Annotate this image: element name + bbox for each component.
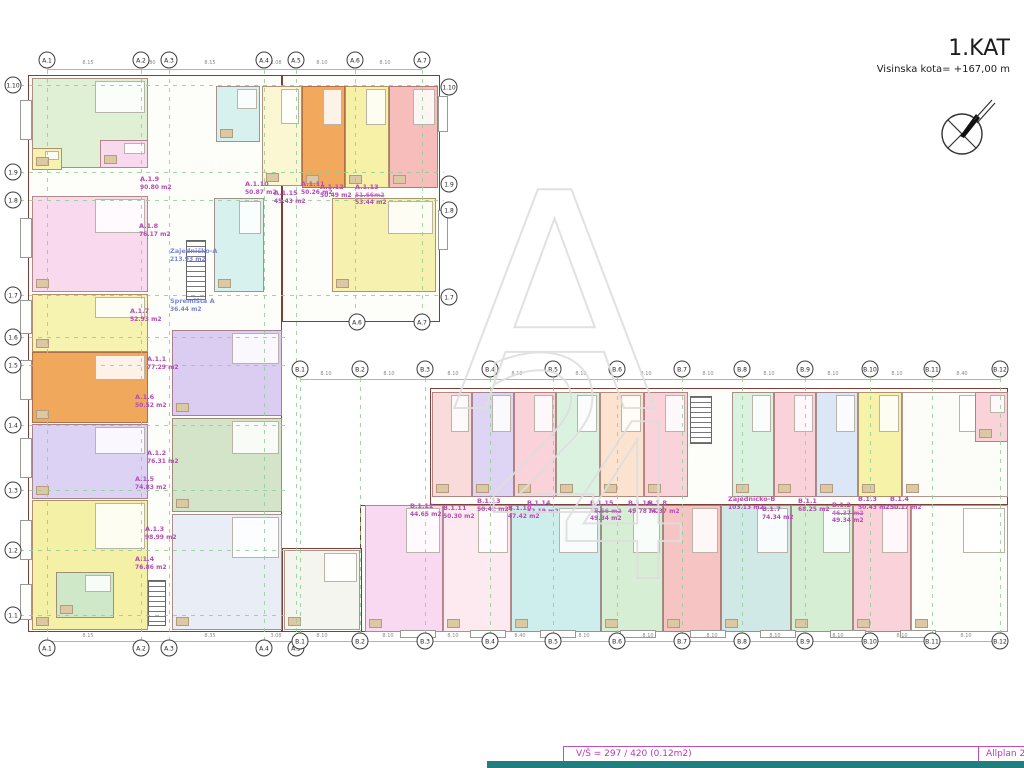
statusbar-topline	[563, 746, 1024, 747]
dimension-value: 8.10	[960, 633, 971, 639]
apartment-area: 74.83 m2	[135, 484, 167, 491]
apartment-number: Zajedničko-A	[170, 248, 217, 256]
stair-core-a2	[148, 580, 166, 626]
dimension-value: 8.10	[320, 371, 331, 377]
axis-bubble: B.8	[734, 633, 751, 650]
apartment-area: 50.49 m2	[320, 192, 352, 199]
apartment-area: 76.86 m2	[135, 564, 167, 571]
axis-bubble: B.6	[609, 361, 626, 378]
apartment-number: A.1.13	[355, 184, 387, 192]
axis-bubble: A.2	[133, 52, 150, 69]
axis-bubble: 1.2	[5, 542, 22, 559]
axis-bubble: B.9	[797, 361, 814, 378]
dimension-value: 8.10	[575, 371, 586, 377]
axis-bubble: B.7	[674, 361, 691, 378]
apartment-unit-block	[443, 505, 511, 632]
apartment-number: A.1.10	[245, 181, 277, 189]
dimension-value: 8.10	[447, 633, 458, 639]
apartment-unit-block	[172, 330, 282, 416]
grid-line-horizontal	[20, 85, 444, 86]
apartment-number: A.1.7	[130, 308, 162, 316]
grid-line-vertical	[47, 70, 48, 652]
axis-bubble: A.4	[256, 52, 273, 69]
statusbar-divider	[563, 746, 564, 762]
dimension-value: 8.10	[316, 60, 327, 66]
apartment-unit-block	[216, 86, 260, 142]
dimension-value: 8.15	[82, 60, 93, 66]
dimension-value: 8.10	[896, 633, 907, 639]
apartment-label: A.1.12 50.49 m2	[320, 184, 352, 199]
dimension-value: 8.10	[702, 371, 713, 377]
apartment-label: B.1.3 50.43 m2	[858, 496, 890, 511]
apartment-area-struck: 51.66m2	[355, 192, 387, 199]
apartment-unit-block	[732, 392, 774, 497]
axis-bubble: A.3	[161, 52, 178, 69]
axis-bubble: 1.7	[5, 287, 22, 304]
apartment-area: 98.99 m2	[145, 534, 177, 541]
apartment-number: B.1.1	[798, 498, 830, 506]
dimension-value: 8.10	[640, 371, 651, 377]
axis-bubble: B.1	[292, 361, 309, 378]
apartment-label: B.1.8 74.37 m2	[648, 500, 680, 515]
apartment-unit-block	[600, 392, 644, 497]
apartment-unit-block	[472, 392, 514, 497]
apartment-area: 49.34 m2	[832, 517, 864, 524]
apartment-unit-block	[663, 505, 721, 632]
apartment-unit-block	[332, 198, 436, 292]
axis-bubble: 1.4	[5, 417, 22, 434]
apartment-number: B.1.12	[410, 503, 442, 511]
balcony	[20, 218, 32, 258]
axis-bubble: 1.10	[441, 79, 458, 96]
apartment-unit-block	[721, 505, 791, 632]
axis-bubble: A.4	[256, 640, 273, 657]
apartment-number: A.1.5	[135, 476, 167, 484]
apartment-area: 49.34 m2	[590, 515, 622, 522]
elevation-note: Visinska kota= +167,00 m	[877, 64, 1010, 75]
dimension-value: 8.10	[642, 633, 653, 639]
axis-bubble: B.11	[924, 361, 941, 378]
apartment-area: 52.19 m2	[527, 508, 559, 515]
stair-core-b	[690, 396, 712, 444]
dimension-value: 8.10	[578, 633, 589, 639]
apartment-number: A.1.2	[147, 450, 179, 458]
apartment-area: 45.43 m2	[274, 198, 306, 205]
axis-bubble: B.2	[352, 633, 369, 650]
apartment-area: 50.87 m2	[245, 189, 277, 196]
axis-bubble: A.1	[39, 52, 56, 69]
apartment-area: 90.80 m2	[140, 184, 172, 191]
apartment-label: B.1.4 50.17 m2	[890, 496, 922, 511]
axis-bubble: A.1	[39, 640, 56, 657]
dim-chain-top	[47, 69, 422, 70]
axis-bubble: B.7	[674, 633, 691, 650]
apartment-unit-block	[514, 392, 556, 497]
balcony	[438, 96, 448, 132]
apartment-label: A.1.7 52.93 m2	[130, 308, 162, 323]
apartment-unit-block	[172, 418, 282, 512]
apartment-label: A.1.1 77.29 m2	[147, 356, 179, 371]
axis-bubble: A.6	[349, 314, 366, 331]
apartment-unit-block	[432, 392, 472, 497]
apartment-area: 44.65 m2	[410, 511, 442, 518]
apartment-number: B.1.8	[648, 500, 680, 508]
axis-bubble: A.5	[288, 52, 305, 69]
floor-title: 1.KAT	[948, 36, 1010, 61]
statusbar-teal-bar	[487, 761, 1024, 768]
apartment-label: A.1.3 98.99 m2	[145, 526, 177, 541]
apartment-area: 50.42 m2	[477, 506, 509, 513]
apartment-number: B.1.13	[477, 498, 509, 506]
axis-bubble: B.10	[862, 633, 879, 650]
axis-bubble: B.3	[417, 361, 434, 378]
apartment-unit-block	[511, 505, 601, 632]
balcony	[20, 360, 32, 400]
apartment-number: A.1.9	[140, 176, 172, 184]
apartment-number: A.1.1	[147, 356, 179, 364]
axis-bubble: B.11	[924, 633, 941, 650]
dimension-value: 8.10	[769, 633, 780, 639]
grid-line-vertical	[932, 378, 933, 636]
apartment-number: Zajedničko-B	[728, 496, 775, 504]
grid-line-horizontal	[20, 172, 444, 173]
apartment-label: B.1.7 74.34 m2	[762, 506, 794, 521]
apartment-unit-block	[32, 424, 148, 499]
axis-bubble: 1.6	[5, 329, 22, 346]
apartment-area: 36.44 m2	[170, 306, 215, 313]
apartment-area: 76.17 m2	[139, 231, 171, 238]
axis-bubble: A.7	[414, 314, 431, 331]
grid-line-vertical	[682, 378, 683, 636]
apartment-area: 77.29 m2	[147, 364, 179, 371]
apartment-unit-block	[911, 505, 1008, 632]
apartment-unit-block	[32, 196, 148, 292]
apartment-number: B.1.3	[858, 496, 890, 504]
apartment-area-struck: 45.56 m2	[590, 508, 622, 515]
axis-bubble: B.6	[609, 633, 626, 650]
axis-bubble: A.2	[133, 640, 150, 657]
apartment-area: 50.17 m2	[890, 504, 922, 511]
axis-bubble: B.4	[482, 361, 499, 378]
apartment-number: A.1.6	[135, 394, 167, 402]
dimension-value: 8.10	[511, 371, 522, 377]
balcony	[20, 300, 32, 334]
apartment-area: 52.93 m2	[130, 316, 162, 323]
axis-bubble: A.6	[347, 52, 364, 69]
apartment-area: 50.43 m2	[858, 504, 890, 511]
dimension-value: 8.10	[827, 371, 838, 377]
dimension-value: 8.15	[204, 60, 215, 66]
apartment-unit-block	[56, 572, 114, 618]
apartment-area: 53.44 m2	[355, 199, 387, 206]
dimension-value: 8.10	[316, 633, 327, 639]
axis-bubble: B.9	[797, 633, 814, 650]
axis-bubble: 1.9	[5, 164, 22, 181]
grid-line-horizontal	[20, 615, 288, 616]
axis-bubble: 1.10	[5, 77, 22, 94]
apartment-area: 74.34 m2	[762, 514, 794, 521]
apartment-number: A.1.12	[320, 184, 352, 192]
dimension-value: 8.10	[382, 633, 393, 639]
apartment-label: A.1.15 45.43 m2	[274, 190, 306, 205]
apartment-unit-block	[601, 505, 663, 632]
dimension-value: 8.10	[832, 633, 843, 639]
axis-bubble: 1.7	[441, 289, 458, 306]
apartment-label: B.1.13 50.42 m2	[477, 498, 509, 513]
axis-bubble: B.8	[734, 361, 751, 378]
axis-bubble: B.3	[417, 633, 434, 650]
apartment-number: A.1.3	[145, 526, 177, 534]
balcony	[20, 520, 32, 560]
balcony	[20, 100, 32, 140]
apartment-unit-block	[32, 294, 148, 352]
apartment-label: A.1.6 50.52 m2	[135, 394, 167, 409]
apartment-number: B.1.7	[762, 506, 794, 514]
balcony	[20, 438, 32, 478]
apartment-number: Spremišta A	[170, 298, 215, 306]
grid-line-vertical	[264, 70, 265, 652]
allplan-credit: Allplan 2	[986, 749, 1024, 759]
apartment-unit-block	[556, 392, 600, 497]
grid-line-vertical	[360, 378, 361, 636]
axis-bubble: A.3	[161, 640, 178, 657]
apartment-unit-block	[172, 514, 282, 630]
apartment-label: B.1.1 68.25 m2	[798, 498, 830, 513]
dimension-value: 8.10	[763, 371, 774, 377]
apartment-area: 74.37 m2	[648, 508, 680, 515]
apartment-unit-block	[975, 392, 1008, 442]
floorplan-sheet: 8.152.808.153.088.108.10 8.108.108.108.1…	[0, 0, 1024, 768]
apartment-unit-block	[365, 505, 443, 632]
grid-line-vertical	[1000, 378, 1001, 636]
axis-bubble: A.7	[414, 52, 431, 69]
dimension-value: 8.10	[891, 371, 902, 377]
axis-bubble: B.10	[862, 361, 879, 378]
apartment-label: A.1.13 51.66m2 53.44 m2	[355, 184, 387, 206]
north-compass-icon	[930, 96, 1006, 162]
apartment-label: B.1.15 45.56 m2 49.34 m2	[590, 500, 622, 522]
apartment-unit-block	[32, 352, 148, 423]
scale-info: V/Š = 297 / 420 (0.12m2)	[576, 749, 692, 759]
apartment-number: B.1.4	[890, 496, 922, 504]
dim-chain-bottom	[47, 641, 1000, 642]
apartment-number: A.1.15	[274, 190, 306, 198]
grid-line-vertical	[422, 70, 423, 316]
apartment-unit-block	[774, 392, 816, 497]
dimension-value: 8.40	[956, 371, 967, 377]
apartment-label: A.1.2 76.31 m2	[147, 450, 179, 465]
apartment-area: 213.93 m2	[170, 256, 217, 263]
apartment-label: A.1.9 90.80 m2	[140, 176, 172, 191]
apartment-label: A.1.4 76.86 m2	[135, 556, 167, 571]
apartment-label: A.1.8 76.17 m2	[139, 223, 171, 238]
statusbar-divider-2	[978, 746, 979, 762]
apartment-unit-block	[816, 392, 858, 497]
apartment-number: A.1.8	[139, 223, 171, 231]
axis-bubble: B.4	[482, 633, 499, 650]
axis-bubble: 1.5	[5, 357, 22, 374]
dim-chain-b	[300, 379, 1000, 380]
apartment-area: 50.30 m2	[443, 513, 475, 520]
dimension-value: 8.10	[383, 371, 394, 377]
apartment-label: A.1.5 74.83 m2	[135, 476, 167, 491]
dimension-value: 8.15	[82, 633, 93, 639]
dimension-value: 8.10	[706, 633, 717, 639]
axis-bubble: 1.3	[5, 482, 22, 499]
dimension-value: 8.40	[514, 633, 525, 639]
dimension-value: 3.08	[270, 633, 281, 639]
dimension-value: 8.35	[204, 633, 215, 639]
grid-line-horizontal	[20, 295, 444, 296]
apartment-area: 50.52 m2	[135, 402, 167, 409]
grid-line-horizontal	[20, 425, 288, 426]
apartment-unit-block	[214, 198, 264, 292]
axis-bubble: B.1	[292, 633, 309, 650]
apartment-label: Zajedničko-A 213.93 m2	[170, 248, 217, 263]
apartment-label: Spremišta A 36.44 m2	[170, 298, 215, 313]
apartment-area: 68.25 m2	[798, 506, 830, 513]
axis-bubble: 1.1	[5, 607, 22, 624]
axis-bubble: B.12	[992, 361, 1009, 378]
axis-bubble: 1.8	[5, 192, 22, 209]
axis-bubble: B.12	[992, 633, 1009, 650]
apartment-label: B.1.14 52.19 m2	[527, 500, 559, 515]
dimension-value: 8.10	[379, 60, 390, 66]
axis-bubble: 1.9	[441, 176, 458, 193]
apartment-label: B.1.11 50.30 m2	[443, 505, 475, 520]
apartment-number: B.1.11	[443, 505, 475, 513]
axis-bubble: B.2	[352, 361, 369, 378]
apartment-label: B.1.12 44.65 m2	[410, 503, 442, 518]
apartment-unit-block	[858, 392, 902, 497]
dimension-value: 8.10	[447, 371, 458, 377]
apartment-number: B.1.14	[527, 500, 559, 508]
axis-bubble: 1.8	[441, 202, 458, 219]
grid-line-vertical	[300, 378, 301, 636]
grid-line-horizontal	[20, 337, 288, 338]
axis-bubble: B.5	[545, 361, 562, 378]
grid-line-horizontal	[20, 550, 288, 551]
apartment-number: B.1.15	[590, 500, 622, 508]
axis-bubble: B.5	[545, 633, 562, 650]
apartment-label: A.1.10 50.87 m2	[245, 181, 277, 196]
apartment-number: A.1.4	[135, 556, 167, 564]
apartment-area: 76.31 m2	[147, 458, 179, 465]
